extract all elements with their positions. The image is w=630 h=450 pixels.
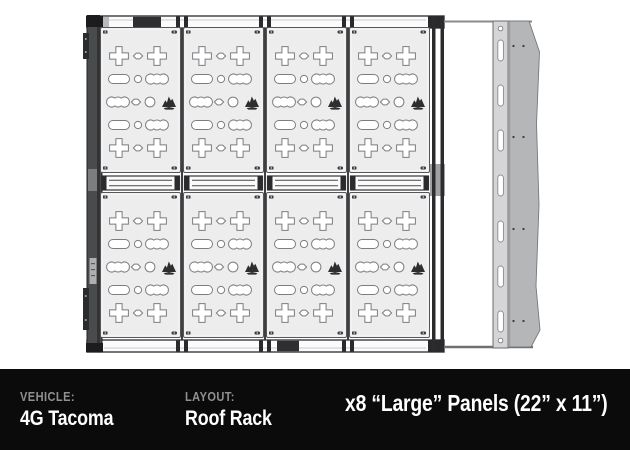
knob-cutout <box>394 97 404 107</box>
scallop-cutout <box>273 262 296 272</box>
strip-slot <box>498 175 504 196</box>
panel-clip <box>259 341 263 352</box>
panel-clip <box>342 17 346 28</box>
diamond-cutout <box>299 53 308 59</box>
panel-screw-dot <box>188 332 189 333</box>
mid-crossbar <box>351 176 429 190</box>
circle-cutout <box>383 75 390 82</box>
panel-screw-dot <box>105 196 106 197</box>
mid-crossbar-cap <box>341 176 346 190</box>
scallop-cutout <box>190 97 213 107</box>
mid-crossbar <box>102 176 180 190</box>
roof-panel <box>101 28 181 173</box>
circle-cutout <box>217 121 224 128</box>
scallop-cutout <box>395 239 418 249</box>
panel-screw-dot <box>105 332 106 333</box>
scallop-cutout <box>146 285 169 295</box>
bracket-bolt <box>85 38 87 40</box>
mid-crossbar <box>185 176 263 190</box>
scallop-cutout <box>190 262 213 272</box>
rail-label-mark <box>91 269 95 270</box>
diamond-cutout <box>299 310 308 316</box>
oval-cutout <box>192 121 213 130</box>
mount-bracket <box>83 33 89 59</box>
circle-cutout <box>134 286 141 293</box>
rail-label <box>90 258 97 284</box>
mid-crossbar-cap <box>102 176 107 190</box>
right-side-rail <box>432 16 436 352</box>
panel-screw-dot <box>271 31 272 32</box>
scallop-cutout <box>229 239 252 249</box>
circle-cutout <box>217 286 224 293</box>
oval-cutout <box>275 286 296 295</box>
mid-crossbar-cap <box>175 176 180 190</box>
oval-cutout <box>192 286 213 295</box>
panel-screw-dot <box>271 196 272 197</box>
scallop-cutout <box>312 285 335 295</box>
panel-screw-dot <box>423 332 424 333</box>
circle-cutout <box>134 75 141 82</box>
circle-cutout <box>217 75 224 82</box>
panel-clip <box>184 341 188 352</box>
panel-joint <box>347 16 349 352</box>
circle-cutout <box>300 240 307 247</box>
panel-screw-dot <box>188 196 189 197</box>
mid-crossbar-cap <box>424 176 429 190</box>
panel-count-headline: x8 “Large” Panels (22” x 11”) <box>345 390 608 417</box>
panel-screw-dot <box>340 196 341 197</box>
knob-cutout <box>311 262 321 272</box>
diamond-cutout <box>133 53 142 59</box>
fairing-rivet <box>522 45 524 47</box>
strip-hole <box>498 26 503 31</box>
panel-screw-dot <box>257 167 258 168</box>
panel-clip <box>350 17 354 28</box>
circle-cutout <box>383 121 390 128</box>
oval-cutout <box>358 121 379 130</box>
oval-cutout <box>358 75 379 84</box>
mid-crossbar-cap <box>258 176 263 190</box>
strip-slot <box>498 266 504 287</box>
oval-cutout <box>109 121 130 130</box>
diamond-cutout <box>382 53 391 59</box>
circle-cutout <box>134 121 141 128</box>
panel-screw-dot <box>174 167 175 168</box>
oval-cutout <box>192 240 213 249</box>
roof-rack-top-view-diagram <box>0 0 630 368</box>
fairing-rivet <box>512 228 514 230</box>
vehicle-label: VEHICLE: <box>20 391 113 403</box>
diamond-cutout <box>216 310 225 316</box>
panel-clip <box>267 17 271 28</box>
fairing-rivet <box>512 320 514 322</box>
layout-label: LAYOUT: <box>185 391 272 403</box>
product-layout-screenshot: VEHICLE: 4G Tacoma LAYOUT: Roof Rack x8 … <box>0 0 630 450</box>
oval-cutout <box>275 240 296 249</box>
oval-cutout <box>275 75 296 84</box>
panel-screw-dot <box>174 196 175 197</box>
panel-screw-dot <box>423 167 424 168</box>
vehicle-spec: VEHICLE: 4G Tacoma <box>20 391 130 430</box>
spec-bar: VEHICLE: 4G Tacoma LAYOUT: Roof Rack x8 … <box>0 369 630 450</box>
left-rail-groove <box>97 22 100 350</box>
bracket-bolt <box>85 319 87 321</box>
fairing-rivet <box>512 45 514 47</box>
diamond-cutout <box>380 99 389 105</box>
diamond-cutout <box>380 264 389 270</box>
diamond-cutout <box>216 53 225 59</box>
mid-crossbar-cap <box>268 176 273 190</box>
scallop-cutout <box>107 97 130 107</box>
diamond-cutout <box>382 145 391 151</box>
oval-cutout <box>109 75 130 84</box>
diamond-cutout <box>214 264 223 270</box>
oval-cutout <box>358 286 379 295</box>
fairing-rivet <box>522 228 524 230</box>
panel-screw-dot <box>188 31 189 32</box>
vehicle-value: 4G Tacoma <box>20 408 113 430</box>
scallop-cutout <box>395 120 418 130</box>
strip-slot <box>498 85 504 106</box>
diamond-cutout <box>297 99 306 105</box>
rear-crossbar <box>87 340 444 352</box>
panel-clip <box>342 341 346 352</box>
left-rail-notch <box>88 169 97 191</box>
panel-clip <box>176 341 180 352</box>
panel-screw-dot <box>423 196 424 197</box>
scallop-cutout <box>356 97 379 107</box>
diamond-cutout <box>299 218 308 224</box>
mount-bracket <box>83 288 89 330</box>
diamond-cutout <box>382 218 391 224</box>
knob-cutout <box>228 262 238 272</box>
panel-screw-dot <box>271 167 272 168</box>
scallop-cutout <box>229 120 252 130</box>
roof-panel <box>267 193 347 338</box>
layout-value: Roof Rack <box>185 408 272 430</box>
panel-joint <box>264 16 266 352</box>
panel-screw-dot <box>271 332 272 333</box>
roof-panel <box>267 28 347 173</box>
diamond-cutout <box>214 99 223 105</box>
diamond-cutout <box>216 145 225 151</box>
oval-cutout <box>192 75 213 84</box>
panel-screw-dot <box>188 167 189 168</box>
layout-spec: LAYOUT: Roof Rack <box>185 391 287 430</box>
roof-panel <box>350 28 430 173</box>
circle-cutout <box>383 240 390 247</box>
oval-cutout <box>358 240 379 249</box>
diamond-cutout <box>133 145 142 151</box>
rail-label-mark <box>91 263 95 264</box>
crossbar-mount-block <box>133 17 161 27</box>
panel-screw-dot <box>257 332 258 333</box>
diamond-cutout <box>216 218 225 224</box>
panel-screw-dot <box>257 196 258 197</box>
diamond-cutout <box>382 310 391 316</box>
scallop-cutout <box>312 74 335 84</box>
panel-clip <box>350 341 354 352</box>
left-rail-cap <box>86 16 103 27</box>
panel-screw-dot <box>354 196 355 197</box>
panel-screw-dot <box>340 167 341 168</box>
panel-screw-dot <box>354 31 355 32</box>
scallop-cutout <box>312 120 335 130</box>
circle-cutout <box>300 75 307 82</box>
fairing-rivet <box>512 136 514 138</box>
circle-cutout <box>300 286 307 293</box>
panel-screw-dot <box>257 31 258 32</box>
roof-panel <box>350 193 430 338</box>
oval-cutout <box>109 240 130 249</box>
bracket-bolt <box>85 51 87 53</box>
knob-cutout <box>145 262 155 272</box>
panel-screw-dot <box>174 31 175 32</box>
fairing-rivet <box>522 320 524 322</box>
diamond-cutout <box>131 264 140 270</box>
panel-screw-dot <box>423 31 424 32</box>
mid-crossbar-cap <box>351 176 356 190</box>
circle-cutout <box>217 240 224 247</box>
scallop-cutout <box>229 285 252 295</box>
strip-hole <box>498 338 503 343</box>
scallop-cutout <box>356 262 379 272</box>
strip-slot <box>498 311 504 332</box>
scallop-cutout <box>312 239 335 249</box>
left-rail-cap <box>86 343 103 352</box>
panel-screw-dot <box>340 31 341 32</box>
panel-screw-dot <box>174 332 175 333</box>
panel-screw-dot <box>340 332 341 333</box>
knob-cutout <box>228 97 238 107</box>
diamond-cutout <box>133 310 142 316</box>
wind-fairing <box>508 21 540 347</box>
panel-clip <box>176 17 180 28</box>
diamond-cutout <box>131 99 140 105</box>
bracket-bolt <box>85 295 87 297</box>
panel-clip <box>184 17 188 28</box>
knob-cutout <box>311 97 321 107</box>
scallop-cutout <box>395 285 418 295</box>
right-side-rail <box>441 16 445 352</box>
strip-slot <box>498 130 504 151</box>
scallop-cutout <box>107 262 130 272</box>
fairing-rivet <box>522 136 524 138</box>
scallop-cutout <box>273 97 296 107</box>
panel-screw-dot <box>354 332 355 333</box>
scallop-cutout <box>395 74 418 84</box>
mid-crossbar <box>268 176 346 190</box>
mid-crossbar-cap <box>185 176 190 190</box>
oval-cutout <box>275 121 296 130</box>
rail-label-mark <box>91 275 95 276</box>
panel-clip <box>259 17 263 28</box>
strip-slot <box>498 40 504 61</box>
scallop-cutout <box>229 74 252 84</box>
knob-cutout <box>394 262 404 272</box>
diamond-cutout <box>133 218 142 224</box>
panel-screw-dot <box>105 167 106 168</box>
scallop-cutout <box>146 74 169 84</box>
roof-panel <box>184 193 264 338</box>
panel-clip <box>267 341 271 352</box>
roof-panel <box>184 28 264 173</box>
oval-cutout <box>109 286 130 295</box>
diamond-cutout <box>297 264 306 270</box>
knob-cutout <box>145 97 155 107</box>
panel-screw-dot <box>105 31 106 32</box>
strip-slot <box>498 221 504 242</box>
panel-screw-dot <box>354 167 355 168</box>
circle-cutout <box>300 121 307 128</box>
panel-joint <box>181 16 183 352</box>
scallop-cutout <box>146 120 169 130</box>
crossbar-mount-block <box>277 341 299 351</box>
roof-panel <box>101 193 181 338</box>
circle-cutout <box>134 240 141 247</box>
circle-cutout <box>383 286 390 293</box>
scallop-cutout <box>146 239 169 249</box>
diamond-cutout <box>299 145 308 151</box>
